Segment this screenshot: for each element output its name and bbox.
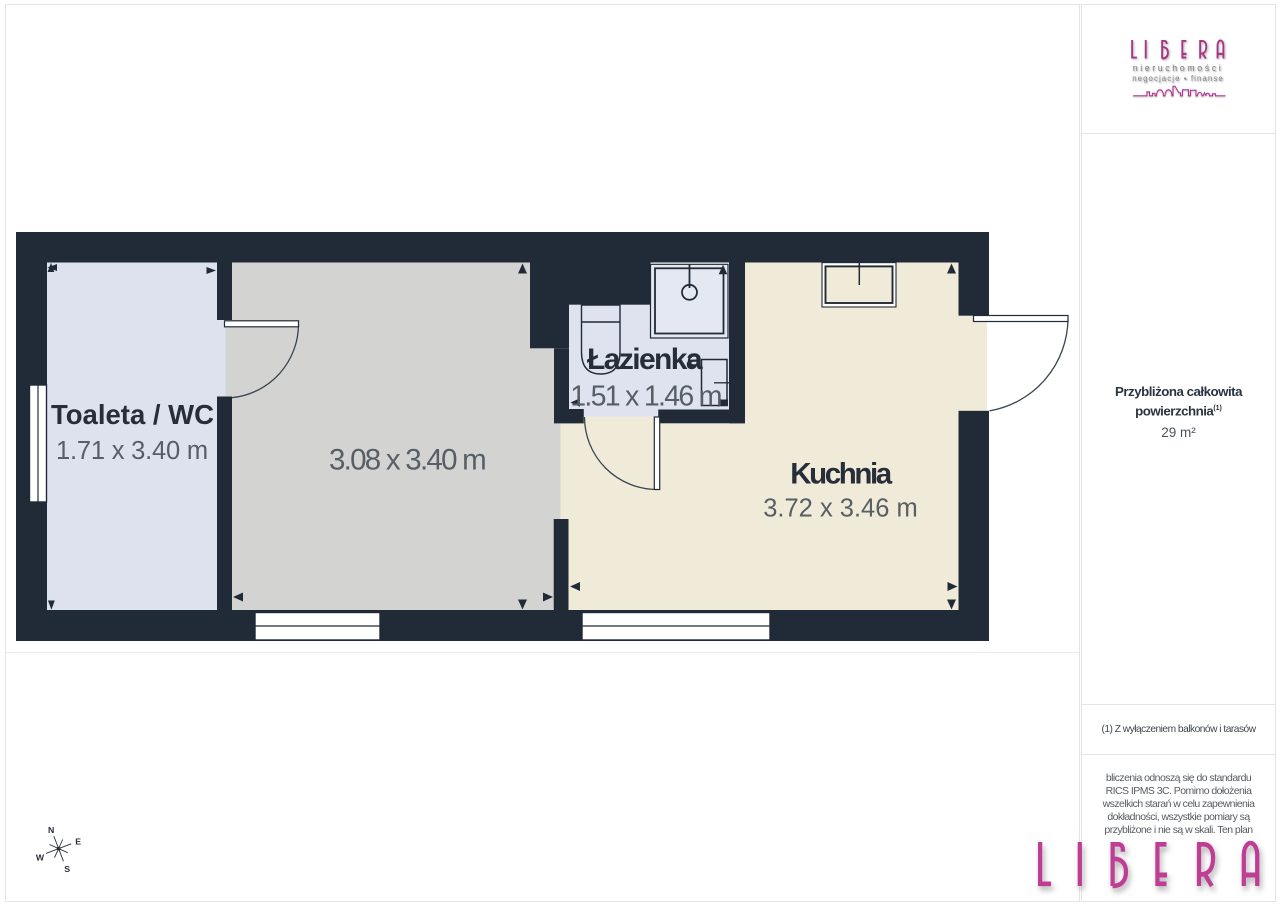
svg-text:S: S [64, 864, 70, 874]
svg-text:negocjacje ▪ finanse: negocjacje ▪ finanse [1132, 74, 1224, 83]
svg-text:Kuchnia: Kuchnia [790, 458, 893, 491]
svg-text:1.51 x 1.46 m: 1.51 x 1.46 m [570, 381, 721, 413]
svg-text:3.72 x 3.46 m: 3.72 x 3.46 m [763, 495, 918, 523]
svg-text:Toaleta / WC: Toaleta / WC [51, 399, 214, 430]
svg-text:1.71 x 3.40 m: 1.71 x 3.40 m [56, 437, 208, 465]
svg-text:3.08 x 3.40 m: 3.08 x 3.40 m [329, 444, 485, 477]
svg-text:E: E [75, 836, 81, 846]
svg-text:nieruchomości: nieruchomości [1133, 63, 1224, 73]
svg-text:W: W [36, 852, 45, 862]
svg-text:N: N [48, 825, 54, 835]
svg-text:Łazienka: Łazienka [587, 343, 703, 376]
